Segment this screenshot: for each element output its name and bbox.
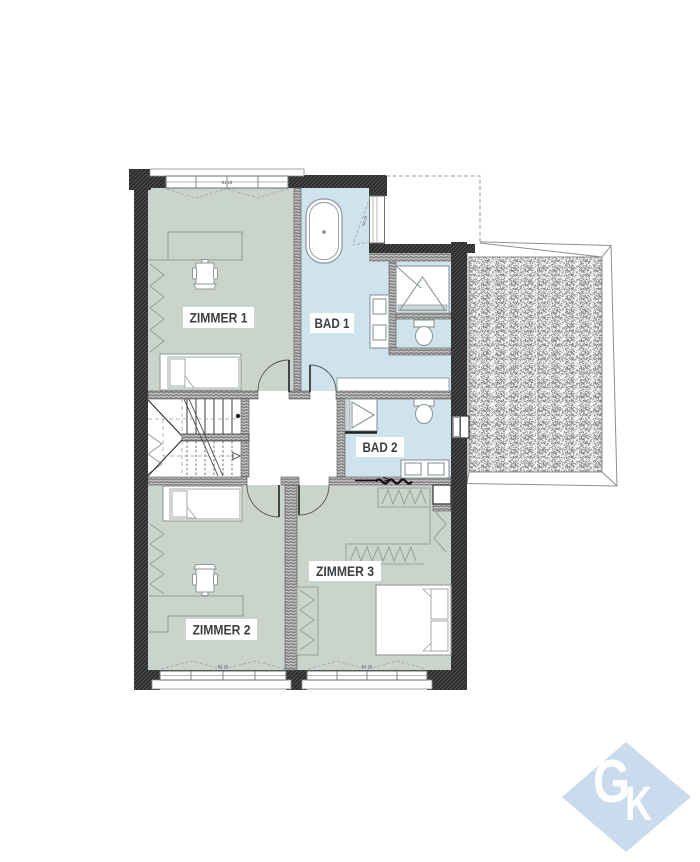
svg-text:K: K bbox=[625, 778, 652, 831]
svg-text:ZIMMER 1: ZIMMER 1 bbox=[190, 310, 248, 326]
svg-text:BAD 2: BAD 2 bbox=[363, 439, 398, 455]
svg-text:81.18: 81.18 bbox=[218, 664, 229, 669]
svg-text:ZIMMER 2: ZIMMER 2 bbox=[193, 622, 251, 638]
svg-text:BAD 1: BAD 1 bbox=[315, 315, 350, 331]
svg-text:81.18: 81.18 bbox=[362, 664, 373, 669]
svg-text:ZIMMER 3: ZIMMER 3 bbox=[316, 563, 374, 579]
svg-text:81.18: 81.18 bbox=[222, 180, 233, 185]
